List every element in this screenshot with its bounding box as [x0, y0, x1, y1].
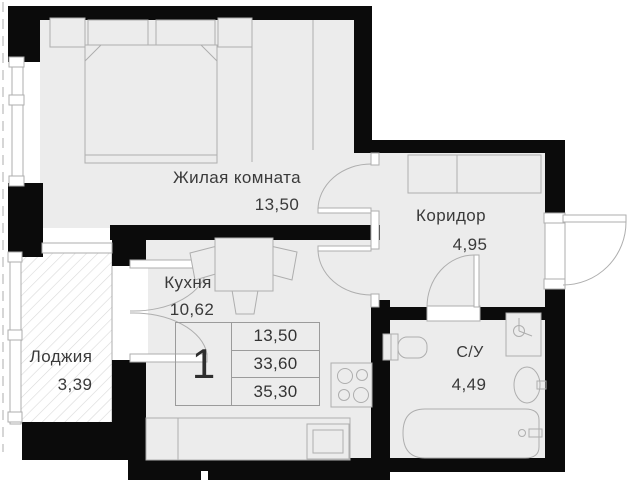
partition-segment	[371, 211, 379, 249]
floor-plan-drawing	[0, 0, 628, 480]
wall-loggia-bottom	[22, 422, 146, 460]
window-frame-mark	[9, 57, 24, 67]
area-without-loggia-value: 33,60	[232, 350, 319, 378]
wall-bathroom-left	[371, 300, 390, 458]
living-area-value: 13,50	[232, 323, 319, 350]
living-room-window	[12, 58, 23, 186]
room-area-bathroom: 4,49	[452, 375, 487, 395]
toilet-bowl	[398, 337, 427, 358]
wall-right-upper	[545, 140, 565, 216]
toilet-tank	[391, 334, 398, 360]
entrance-door-jamb	[544, 213, 565, 223]
corridor-floor	[371, 153, 545, 309]
window-frame-mark	[9, 176, 24, 186]
bathroom-door-leaf	[474, 255, 479, 307]
wall-left-upper	[8, 6, 40, 62]
total-area-value: 35,30	[232, 377, 319, 405]
wall-bottom-extra	[128, 470, 390, 480]
window-frame-mark	[8, 330, 22, 340]
toilet-tank	[383, 334, 391, 360]
room-label-living: Жилая комната	[173, 168, 301, 188]
dining-table	[215, 238, 273, 291]
apartment-info-table: 1 13,50 33,60 35,30	[175, 322, 320, 406]
room-area-kitchen: 10,62	[170, 300, 215, 320]
window-frame-mark	[8, 412, 22, 422]
nightstand-left	[50, 18, 85, 47]
room-area-loggia: 3,39	[58, 375, 93, 395]
nightstand-right	[218, 18, 252, 47]
wall-corridor-bottom-left	[390, 307, 427, 320]
room-area-living: 13,50	[255, 195, 300, 215]
room-area-corridor: 4,95	[453, 235, 488, 255]
bed-pillow-right	[156, 20, 215, 45]
room-label-corridor: Коридор	[416, 206, 486, 226]
entrance-door-swing	[563, 222, 626, 285]
double-bed	[85, 45, 217, 163]
loggia-top-glazing	[42, 243, 112, 253]
window-frame-mark	[8, 252, 22, 262]
room-label-bathroom: С/У	[456, 344, 483, 362]
wall-living-right	[354, 6, 372, 153]
loggia-floor-hatched	[20, 253, 112, 423]
room-label-kitchen: Кухня	[164, 273, 212, 293]
floor-plan: Жилая комната 13,50 Коридор 4,95 Кухня 1…	[0, 0, 628, 480]
window-frame-mark	[9, 95, 24, 105]
oval-washbasin	[514, 367, 540, 403]
entrance-door-opening	[545, 215, 565, 287]
partition-segment	[371, 294, 379, 307]
bathroom-door-opening	[427, 306, 480, 321]
apartment-number: 1	[176, 323, 232, 405]
wall-left-mid	[8, 183, 43, 257]
entrance-door-jamb	[544, 279, 565, 289]
wall-corridor-top	[354, 140, 565, 153]
apartment-areas: 13,50 33,60 35,30	[232, 323, 319, 405]
wall-kitchen-left-bottom	[112, 360, 146, 422]
bed-pillow-left	[88, 20, 148, 45]
living-room-door-leaf	[318, 208, 371, 213]
wall-bottom-notch	[201, 471, 208, 480]
room-label-loggia: Лоджия	[30, 347, 93, 367]
partition-segment	[371, 153, 379, 165]
wall-right-lower	[545, 286, 565, 472]
kitchen-door-leaf	[318, 246, 371, 251]
entrance-door-leaf	[563, 215, 626, 222]
